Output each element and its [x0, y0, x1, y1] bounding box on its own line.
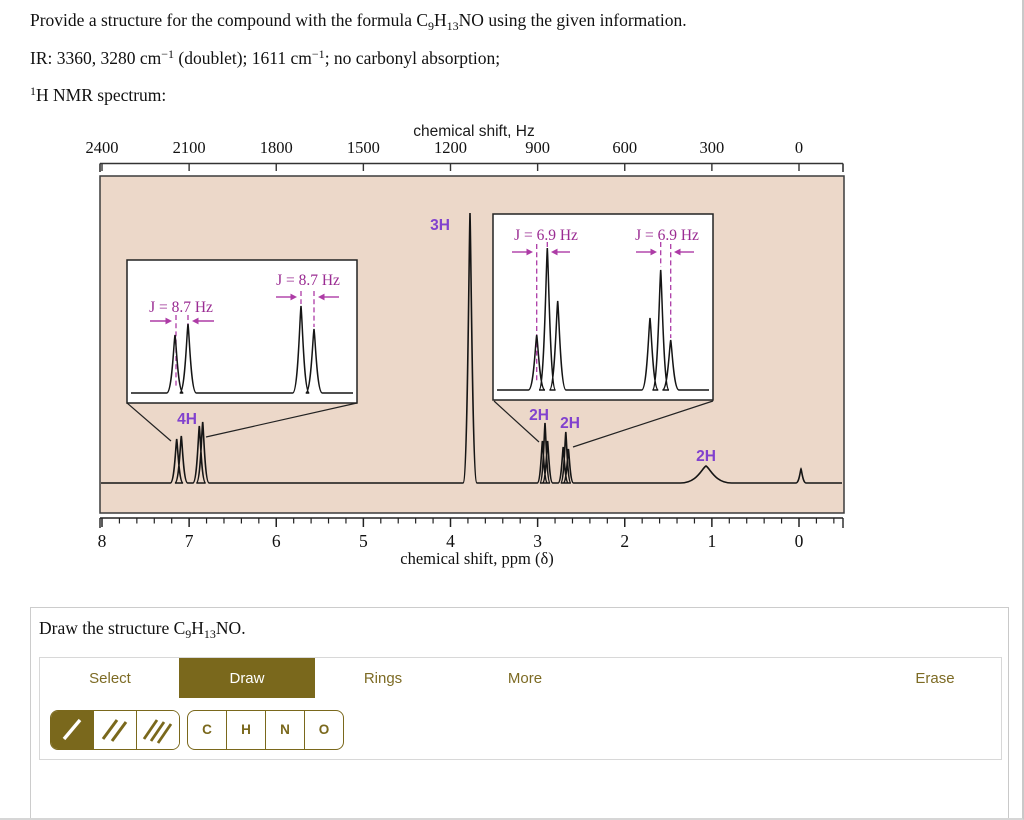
- ppm-tick-label: 7: [185, 531, 194, 551]
- peak-integration-label: 2H: [529, 407, 549, 424]
- peak-integration-label: 4H: [177, 411, 197, 428]
- question-line-1: Provide a structure for the compound wit…: [30, 10, 687, 34]
- nmr-spectrum-svg: chemical shift, Hz2400210018001500120090…: [0, 120, 1024, 575]
- atom-button-c[interactable]: C: [188, 711, 226, 749]
- hz-tick-label: 600: [612, 138, 637, 157]
- hz-tick-label: 2400: [86, 138, 119, 157]
- triple-bond-icon: [137, 711, 179, 749]
- structure-panel: Draw the structure C9H13NO. SelectDrawRi…: [30, 607, 1009, 819]
- j-coupling-label: J = 6.9 Hz: [514, 227, 578, 244]
- page: Provide a structure for the compound wit…: [0, 0, 1024, 820]
- nmr-figure: chemical shift, Hz2400210018001500120090…: [0, 120, 1024, 575]
- j-coupling-label: J = 6.9 Hz: [635, 227, 699, 244]
- atom-button-n[interactable]: N: [265, 711, 304, 749]
- ppm-tick-label: 6: [272, 531, 281, 551]
- ppm-tick-label: 2: [620, 531, 629, 551]
- ppm-tick-label: 1: [708, 531, 717, 551]
- hz-tick-label: 2100: [173, 138, 206, 157]
- hz-tick-label: 1500: [347, 138, 380, 157]
- ppm-tick-label: 4: [446, 531, 455, 551]
- tab-draw[interactable]: Draw: [179, 658, 315, 699]
- ppm-tick-label: 8: [98, 531, 107, 551]
- tab-erase[interactable]: Erase: [885, 658, 985, 699]
- hz-axis-title: chemical shift, Hz: [413, 123, 534, 140]
- ppm-tick-label: 5: [359, 531, 368, 551]
- tab-more[interactable]: More: [475, 658, 575, 699]
- tab-select[interactable]: Select: [60, 658, 160, 699]
- peak-integration-label: 2H: [696, 448, 716, 465]
- hz-tick-label: 0: [795, 138, 803, 157]
- peak-integration-label: 2H: [560, 415, 580, 432]
- bond-tool-group: [50, 710, 180, 750]
- toolbar-tabs: SelectDrawRingsMoreErase: [39, 657, 1002, 700]
- j-coupling-label: J = 8.7 Hz: [149, 299, 213, 316]
- double-bond-icon: [94, 711, 136, 749]
- tab-rings[interactable]: Rings: [333, 658, 433, 699]
- ppm-tick-label: 0: [795, 531, 804, 551]
- toolbar-tools: CHNO: [39, 698, 1002, 760]
- atom-button-h[interactable]: H: [226, 711, 265, 749]
- j-coupling-label: J = 8.7 Hz: [276, 272, 340, 289]
- double-bond-button[interactable]: [93, 711, 136, 749]
- atom-button-o[interactable]: O: [304, 711, 343, 749]
- hz-tick-label: 900: [525, 138, 550, 157]
- single-bond-icon: [51, 711, 93, 749]
- question-line-3: 1H NMR spectrum:: [30, 84, 166, 106]
- ppm-tick-label: 3: [533, 531, 542, 551]
- hz-tick-label: 1800: [260, 138, 293, 157]
- triple-bond-button[interactable]: [136, 711, 179, 749]
- question-line-2: IR: 3360, 3280 cm−1 (doublet); 1611 cm−1…: [30, 47, 500, 69]
- peak-integration-label: 3H: [430, 217, 450, 234]
- ppm-axis-title: chemical shift, ppm (δ): [400, 549, 553, 568]
- single-bond-button[interactable]: [51, 711, 93, 749]
- atom-button-group: CHNO: [187, 710, 344, 750]
- hz-tick-label: 1200: [434, 138, 467, 157]
- hz-tick-label: 300: [700, 138, 725, 157]
- draw-prompt: Draw the structure C9H13NO.: [39, 618, 246, 642]
